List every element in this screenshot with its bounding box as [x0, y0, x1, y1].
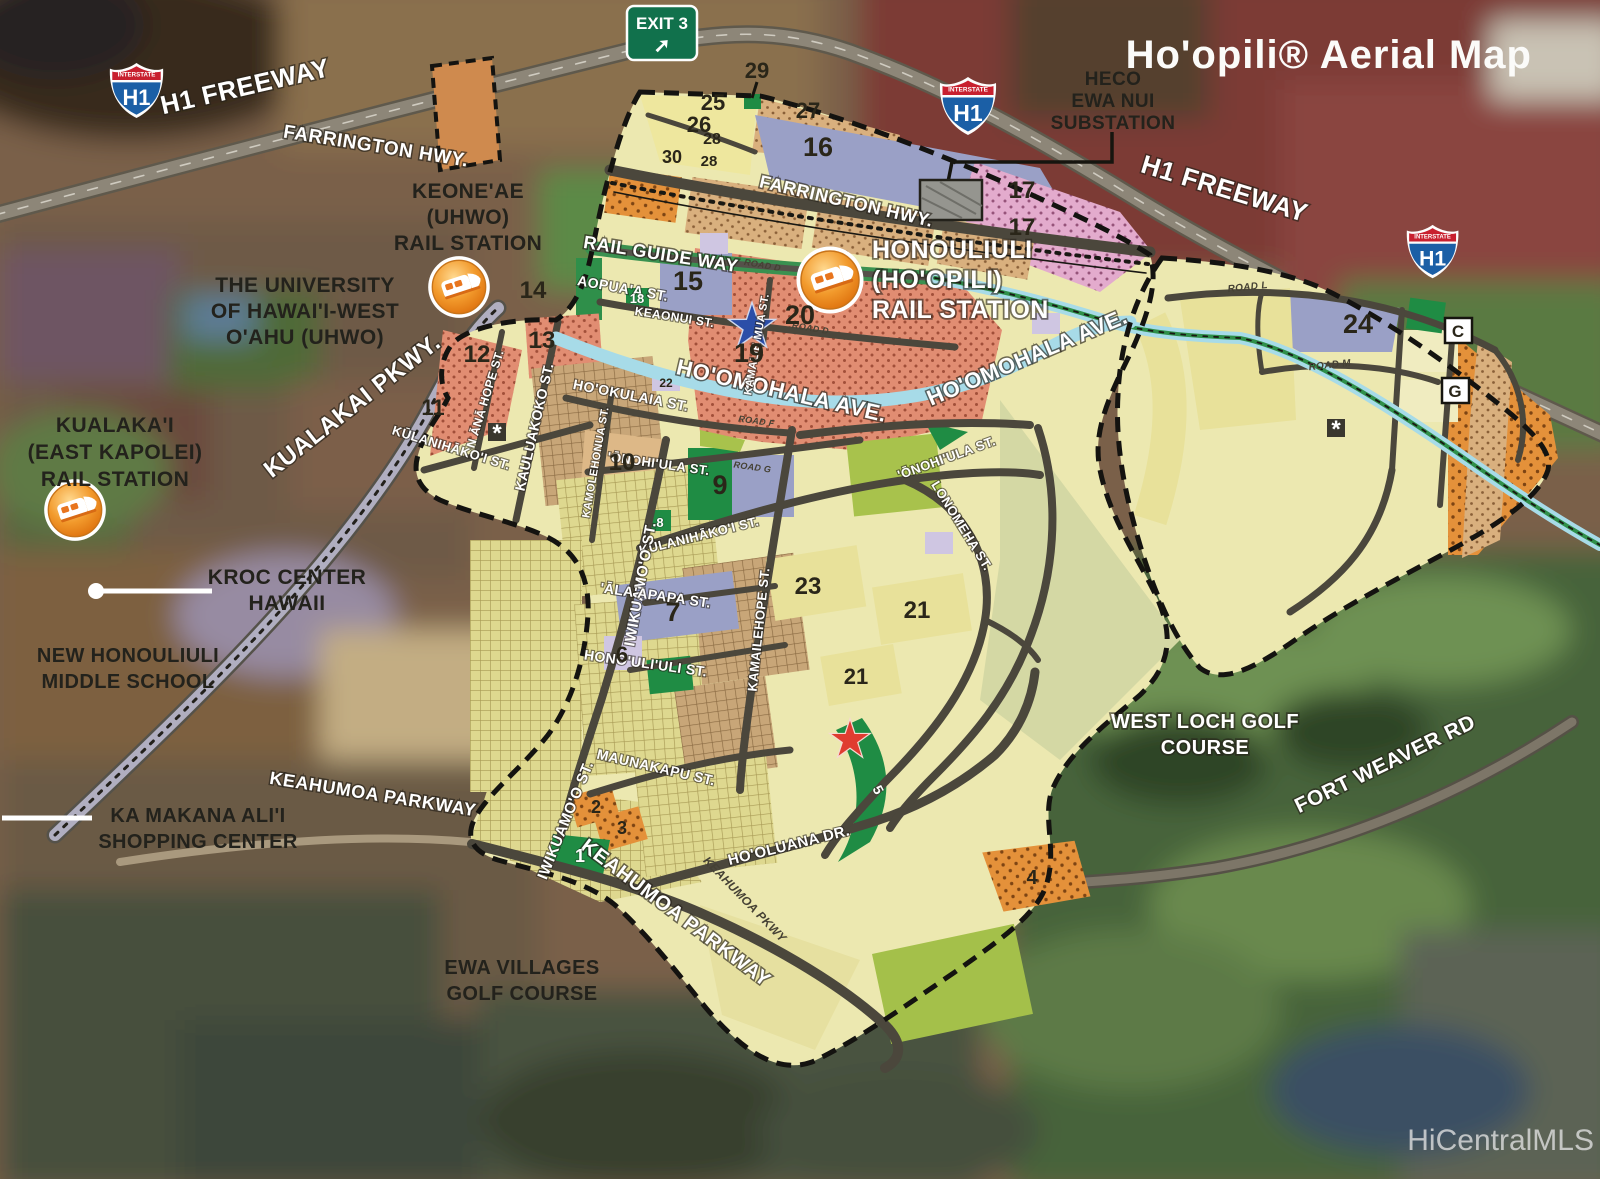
parcel-3: 3: [617, 818, 627, 838]
parcel-17a: 17: [1009, 177, 1036, 204]
parcel-17b: 17: [1009, 214, 1036, 241]
parcel-8: 8: [656, 515, 663, 530]
svg-text:RAIL STATION: RAIL STATION: [41, 468, 189, 491]
parcel-14: 14: [520, 277, 547, 304]
shield-interstate-label: INTERSTATE: [1414, 234, 1451, 240]
parcel-21a: 21: [904, 597, 931, 624]
exit-3-sign: EXIT 3 ➚: [627, 6, 697, 60]
svg-text:NEW HONOULIULI: NEW HONOULIULI: [37, 645, 219, 667]
svg-text:OF HAWAI'I-WEST: OF HAWAI'I-WEST: [211, 300, 399, 323]
parcel-11: 11: [421, 395, 444, 420]
shield-interstate-label: INTERSTATE: [948, 87, 989, 94]
exit-sign-label: EXIT 3: [636, 14, 688, 33]
parcel-28b: 28: [701, 153, 718, 170]
map-title: Ho'opili® Aerial Map: [1126, 33, 1532, 77]
exit-sign-arrow: ➚: [654, 35, 671, 57]
parcel-21b: 21: [844, 664, 868, 689]
svg-text:COURSE: COURSE: [1161, 737, 1250, 759]
svg-text:KA MAKANA ALI'I: KA MAKANA ALI'I: [110, 805, 285, 827]
parcel-22: 22: [659, 376, 673, 390]
place-label-uhwo: THE UNIVERSITY OF HAWAI'I-WEST O'AHU (UH…: [211, 274, 399, 349]
svg-text:(EAST KAPOLEI): (EAST KAPOLEI): [28, 441, 203, 464]
svg-text:KUALAKA'I: KUALAKA'I: [56, 414, 174, 437]
svg-text:RAIL STATION: RAIL STATION: [872, 296, 1049, 324]
map-canvas: EXIT 3 ➚ INTERSTATE H1 INTERSTATE H1 INT…: [0, 0, 1600, 1179]
parcel-19: 19: [734, 338, 764, 368]
watermark: HiCentralMLS: [1407, 1124, 1594, 1157]
svg-text:(HO'OPILI): (HO'OPILI): [872, 266, 1002, 294]
svg-text:SUBSTATION: SUBSTATION: [1051, 113, 1176, 134]
parcel-10: 10: [609, 449, 636, 476]
parcel-24: 24: [1343, 309, 1373, 339]
svg-text:*: *: [1331, 416, 1341, 443]
svg-text:THE UNIVERSITY: THE UNIVERSITY: [215, 274, 394, 297]
parcel-9: 9: [712, 470, 727, 500]
parcel-7: 7: [665, 597, 680, 627]
svg-text:EWA NUI: EWA NUI: [1071, 91, 1154, 112]
svg-text:KEONE'AE: KEONE'AE: [412, 180, 524, 203]
parcel-6: 6: [616, 642, 628, 667]
parcel-18: 18: [630, 291, 644, 306]
parcel-20: 20: [785, 300, 815, 330]
svg-text:*: *: [492, 420, 502, 447]
svg-text:KROC CENTER: KROC CENTER: [208, 566, 366, 589]
svg-text:HECO: HECO: [1085, 69, 1142, 90]
parcel-29: 29: [745, 58, 769, 83]
parcel-13: 13: [529, 327, 556, 354]
parcel-4: 4: [1026, 867, 1038, 889]
parcel-16: 16: [803, 132, 833, 162]
svg-text:EWA VILLAGES: EWA VILLAGES: [444, 957, 599, 979]
parcel-g: G: [1448, 382, 1461, 401]
parcel-1: 1: [575, 846, 585, 866]
shield-route-label: H1: [123, 85, 151, 110]
svg-text:MIDDLE SCHOOL: MIDDLE SCHOOL: [42, 671, 215, 693]
svg-text:HAWAII: HAWAII: [248, 592, 325, 615]
parcel-30: 30: [662, 147, 682, 167]
shield-interstate-label: INTERSTATE: [118, 72, 156, 79]
rail-station-icon: [428, 256, 490, 318]
shield-route-label: H1: [1419, 247, 1446, 270]
parcel-2: 2: [591, 797, 601, 817]
parcel-27: 27: [796, 98, 820, 123]
shield-route-label: H1: [953, 100, 983, 126]
svg-text:GOLF COURSE: GOLF COURSE: [446, 983, 597, 1005]
hoopili-aerial-map: EXIT 3 ➚ INTERSTATE H1 INTERSTATE H1 INT…: [0, 0, 1600, 1179]
parcel-23: 23: [795, 573, 822, 600]
svg-text:(UHWO): (UHWO): [427, 206, 510, 229]
parcel-c: C: [1452, 322, 1464, 341]
svg-text:WEST LOCH GOLF: WEST LOCH GOLF: [1111, 711, 1299, 733]
parcel-28a: 28: [703, 131, 721, 148]
svg-text:O'AHU (UHWO): O'AHU (UHWO): [226, 326, 384, 349]
svg-text:SHOPPING CENTER: SHOPPING CENTER: [98, 831, 298, 853]
svg-text:RAIL STATION: RAIL STATION: [394, 232, 542, 255]
parcel-15: 15: [673, 266, 703, 296]
parcel-12: 12: [464, 341, 491, 368]
